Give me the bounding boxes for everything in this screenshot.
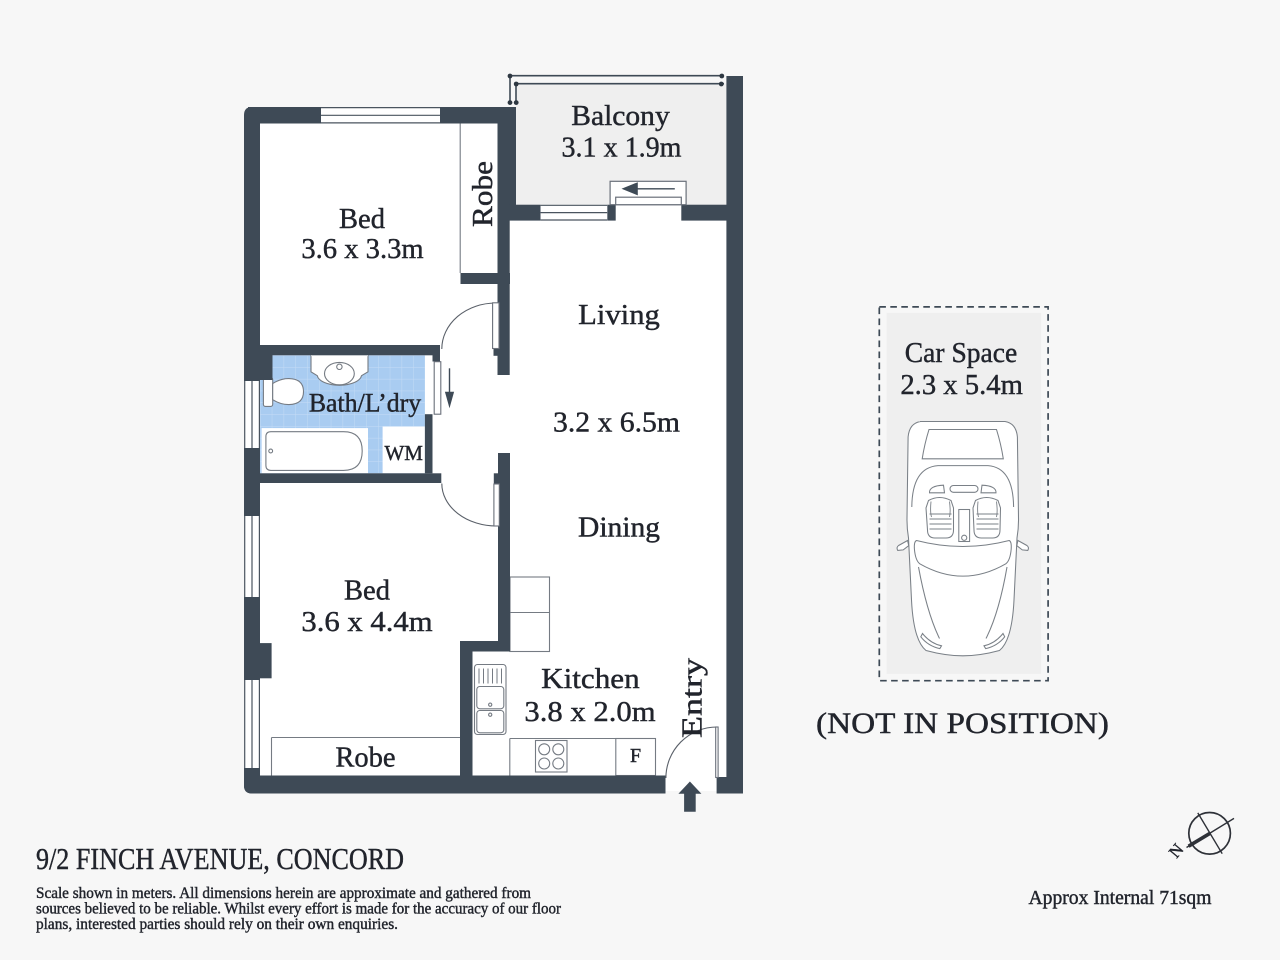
svg-text:3.1 x 1.9m: 3.1 x 1.9m: [562, 133, 682, 164]
svg-text:Bed: Bed: [344, 576, 390, 607]
svg-text:Bed: Bed: [339, 204, 385, 235]
svg-text:F: F: [630, 745, 641, 767]
svg-text:2.3 x 5.4m: 2.3 x 5.4m: [900, 370, 1023, 401]
svg-text:sources believed to be reliab: sources believed to be reliable. Whilst …: [36, 901, 562, 918]
svg-text:Dining: Dining: [578, 513, 660, 544]
svg-text:3.2 x 6.5m: 3.2 x 6.5m: [553, 408, 680, 439]
svg-text:Scale shown in meters. All dim: Scale shown in meters. All dimensions he…: [36, 885, 532, 902]
svg-text:9/2 FINCH AVENUE, CONCORD: 9/2 FINCH AVENUE, CONCORD: [36, 841, 404, 876]
svg-text:plans, interested parties shou: plans, interested parties should rely on…: [36, 916, 398, 933]
svg-text:Bath/L’dry: Bath/L’dry: [309, 388, 421, 417]
svg-text:(NOT IN POSITION): (NOT IN POSITION): [816, 707, 1109, 740]
svg-text:3.6 x 4.4m: 3.6 x 4.4m: [301, 607, 432, 638]
svg-text:Balcony: Balcony: [571, 101, 670, 132]
svg-text:Car Space: Car Space: [905, 338, 1017, 369]
svg-text:Entry: Entry: [678, 657, 709, 738]
svg-text:3.8 x 2.0m: 3.8 x 2.0m: [524, 697, 655, 728]
svg-text:Approx Internal 71sqm: Approx Internal 71sqm: [1029, 888, 1212, 909]
svg-text:3.6 x 3.3m: 3.6 x 3.3m: [301, 234, 423, 265]
svg-text:N: N: [1165, 840, 1187, 862]
svg-text:Kitchen: Kitchen: [541, 664, 640, 695]
svg-text:Robe: Robe: [335, 743, 395, 774]
svg-text:WM: WM: [384, 441, 423, 465]
svg-text:Living: Living: [578, 300, 660, 331]
svg-text:Robe: Robe: [468, 161, 499, 227]
